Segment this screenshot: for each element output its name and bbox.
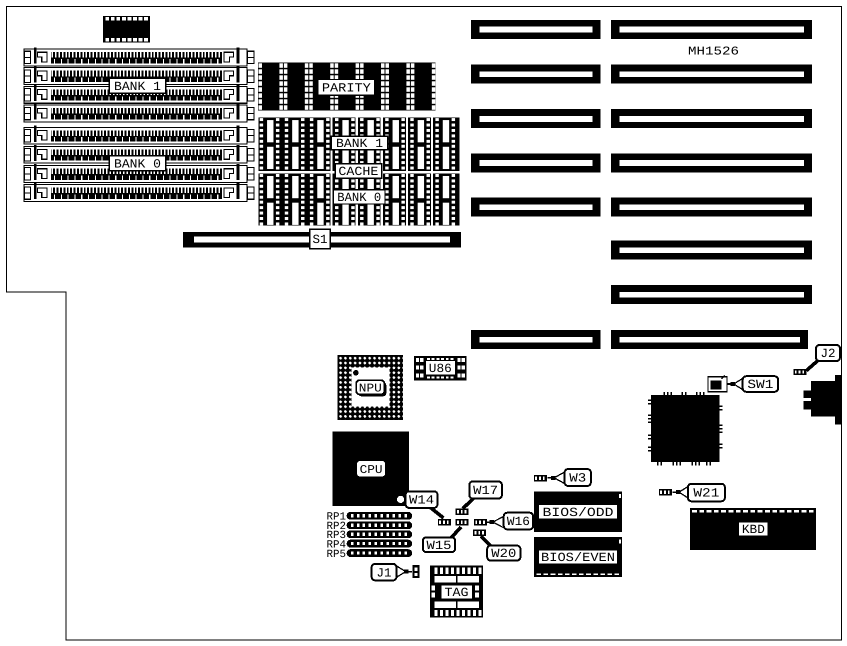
svg-text:MH1526: MH1526 xyxy=(688,45,739,59)
svg-text:CACHE: CACHE xyxy=(338,165,378,179)
svg-text:BANK 0: BANK 0 xyxy=(114,158,161,172)
svg-text:W15: W15 xyxy=(427,539,452,553)
svg-text:BANK 1: BANK 1 xyxy=(114,80,161,94)
svg-text:TAG: TAG xyxy=(445,586,469,600)
svg-text:J2: J2 xyxy=(821,347,836,361)
svg-text:BIOS/ODD: BIOS/ODD xyxy=(543,506,614,520)
svg-text:BANK 1: BANK 1 xyxy=(336,137,383,151)
svg-text:BIOS/EVEN: BIOS/EVEN xyxy=(541,551,615,565)
svg-text:W21: W21 xyxy=(693,487,719,501)
svg-text:CPU: CPU xyxy=(360,463,383,477)
svg-text:W17: W17 xyxy=(473,484,498,498)
svg-text:S1: S1 xyxy=(313,233,328,247)
svg-text:W20: W20 xyxy=(491,547,516,561)
svg-text:PARITY: PARITY xyxy=(322,81,372,95)
svg-text:SW1: SW1 xyxy=(747,378,773,392)
svg-text:W14: W14 xyxy=(409,494,434,508)
svg-text:BANK 0: BANK 0 xyxy=(337,191,381,205)
svg-text:W16: W16 xyxy=(507,515,530,529)
svg-text:W3: W3 xyxy=(569,472,586,486)
svg-text:U86: U86 xyxy=(429,362,452,376)
svg-text:RP5: RP5 xyxy=(327,549,347,561)
svg-text:KBD: KBD xyxy=(742,523,765,537)
svg-text:NPU: NPU xyxy=(359,381,382,395)
svg-text:J1: J1 xyxy=(377,566,392,580)
